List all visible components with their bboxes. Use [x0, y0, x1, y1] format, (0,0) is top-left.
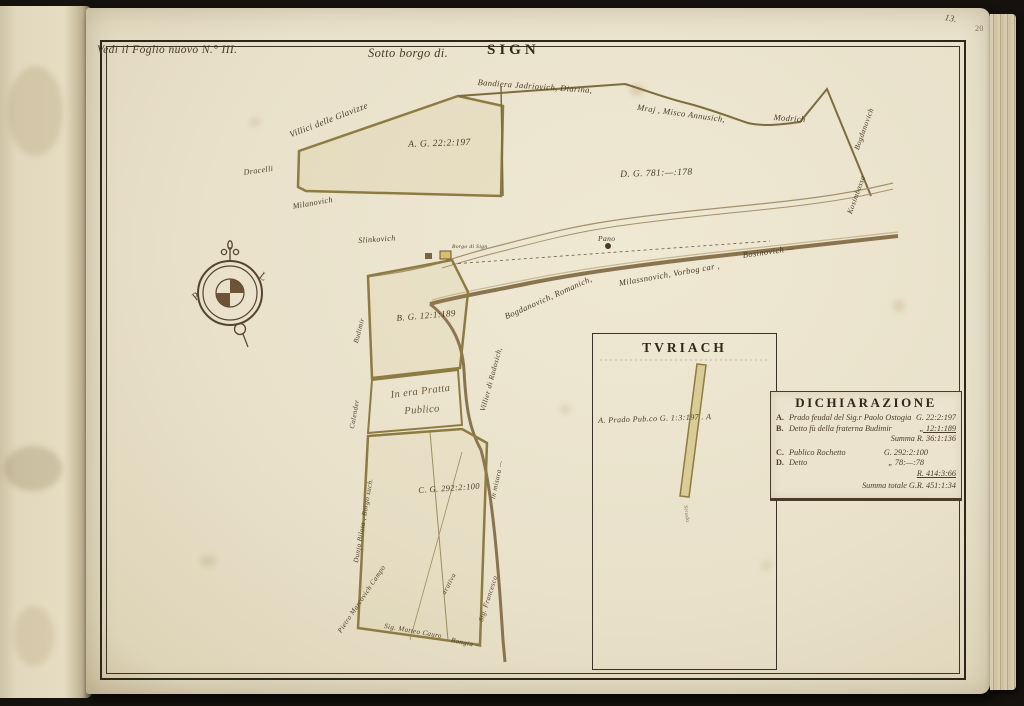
legend-desc: Detto — [789, 458, 888, 469]
legend-row: C. Publico Rochetto G. 292:2:100 — [771, 448, 961, 459]
legend-title: DICHIARAZIONE — [771, 395, 961, 411]
inset-title: TVRIACH — [593, 340, 776, 356]
inset-turiach: TVRIACH — [592, 333, 777, 670]
legend-row-summa: Summa R. 36:1:136 — [771, 434, 961, 445]
legend-row: B. Detto fù della fraterna Budimir „ 12:… — [771, 424, 961, 435]
reference-note: Vedi il Foglio nuovo N.° III. — [97, 44, 237, 56]
legend-value: R. 414:3:66 — [917, 469, 956, 480]
legend-desc: Prado feudal del Sig.r Paolo Ostogia — [789, 413, 916, 424]
atlas-photo: 13. 20 — [0, 0, 1024, 706]
map-title-prefix: Sotto borgo di. — [368, 46, 448, 61]
legend-value: G. 22:2:197 — [916, 413, 956, 424]
map-frame-inner — [106, 46, 960, 674]
legend-desc: Detto fù della fraterna Budimir — [789, 424, 919, 435]
legend-letter: A. — [776, 413, 789, 424]
map-title: SIGN — [487, 42, 540, 59]
legend-value: „ 12:1:189 — [919, 424, 956, 435]
legend-desc: Publico Rochetto — [789, 448, 884, 459]
legend-value: Summa R. 36:1:136 — [891, 434, 956, 445]
page-stain — [14, 606, 54, 666]
legend-row-subtotal: R. 414:3:66 — [771, 469, 961, 480]
legend-value: G. 292:2:100 — [884, 448, 928, 459]
map-frame — [100, 40, 966, 680]
folio-number-pencil: 20 — [975, 24, 984, 33]
point-label: Pano — [598, 234, 615, 243]
legend-total-value: Summa totale G.R. 451:1:34 — [862, 481, 956, 492]
left-page-edge — [0, 6, 92, 698]
legend-box: DICHIARAZIONE A. Prado feudal del Sig.r … — [770, 391, 962, 499]
page-stain — [8, 66, 63, 156]
boundary-label: Modrich — [773, 112, 806, 124]
legend-letter: B. — [776, 424, 789, 435]
legend-row-total: Summa totale G.R. 451:1:34 — [771, 481, 961, 492]
legend-row: A. Prado feudal del Sig.r Paolo Ostogia … — [771, 413, 961, 424]
settlement-label: Borgo di Sign — [452, 244, 488, 250]
page-stain — [4, 446, 62, 491]
legend-letter: D. — [776, 458, 789, 469]
legend-row: D. Detto „ 78:—:78 — [771, 458, 961, 469]
legend-letter: C. — [776, 448, 789, 459]
legend-value: „ 78:—:78 — [888, 458, 924, 469]
right-page-edges — [990, 14, 1016, 690]
